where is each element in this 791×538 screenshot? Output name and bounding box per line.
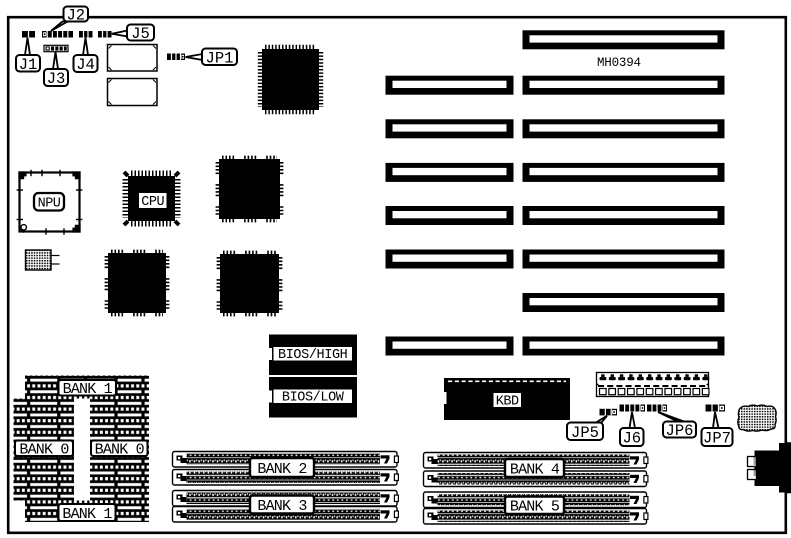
svg-text:J6: J6 <box>622 430 641 448</box>
svg-text:BANK 4: BANK 4 <box>510 461 560 478</box>
svg-text:BANK 0: BANK 0 <box>95 442 145 459</box>
svg-text:NPU: NPU <box>38 197 61 212</box>
svg-text:J2: J2 <box>66 7 85 25</box>
svg-text:J4: J4 <box>76 56 95 74</box>
svg-text:J5: J5 <box>131 25 150 43</box>
svg-text:JP7: JP7 <box>703 430 731 448</box>
svg-text:BANK 1: BANK 1 <box>63 381 113 398</box>
svg-text:CPU: CPU <box>141 195 164 210</box>
svg-text:BIOS/LOW: BIOS/LOW <box>282 391 345 406</box>
svg-text:JP1: JP1 <box>206 49 234 67</box>
svg-text:JP6: JP6 <box>666 422 694 440</box>
svg-text:J3: J3 <box>47 70 66 88</box>
svg-text:BANK 0: BANK 0 <box>19 442 69 459</box>
svg-text:BANK 1: BANK 1 <box>62 506 112 523</box>
svg-text:J1: J1 <box>19 56 38 74</box>
svg-text:JP5: JP5 <box>571 424 599 442</box>
svg-text:BIOS/HIGH: BIOS/HIGH <box>278 348 348 363</box>
svg-text:KBD: KBD <box>496 395 519 410</box>
svg-text:BANK 5: BANK 5 <box>510 499 560 516</box>
svg-text:BANK 3: BANK 3 <box>257 498 307 515</box>
svg-text:MH0394: MH0394 <box>597 56 641 70</box>
svg-text:BANK 2: BANK 2 <box>257 461 306 478</box>
